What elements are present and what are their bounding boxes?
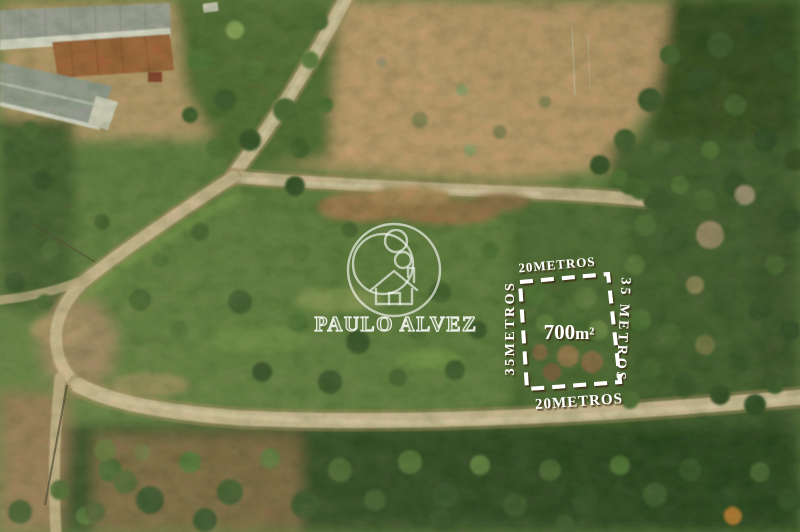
watermark-brand-text: PAULO ALVEZ — [315, 312, 478, 336]
aerial-listing-photo: PAULO ALVEZ 20METROS 20METROS 35METROS 3… — [0, 0, 800, 532]
plot-left-width-label: 35METROS — [503, 281, 518, 376]
lighting-overlay — [0, 0, 800, 532]
plot-area-value: 700 — [544, 320, 576, 344]
scene-svg: PAULO ALVEZ 20METROS 20METROS 35METROS 3… — [0, 0, 800, 532]
plot-area-label: 700m² — [544, 320, 595, 344]
plot-area-unit: m² — [575, 324, 594, 343]
